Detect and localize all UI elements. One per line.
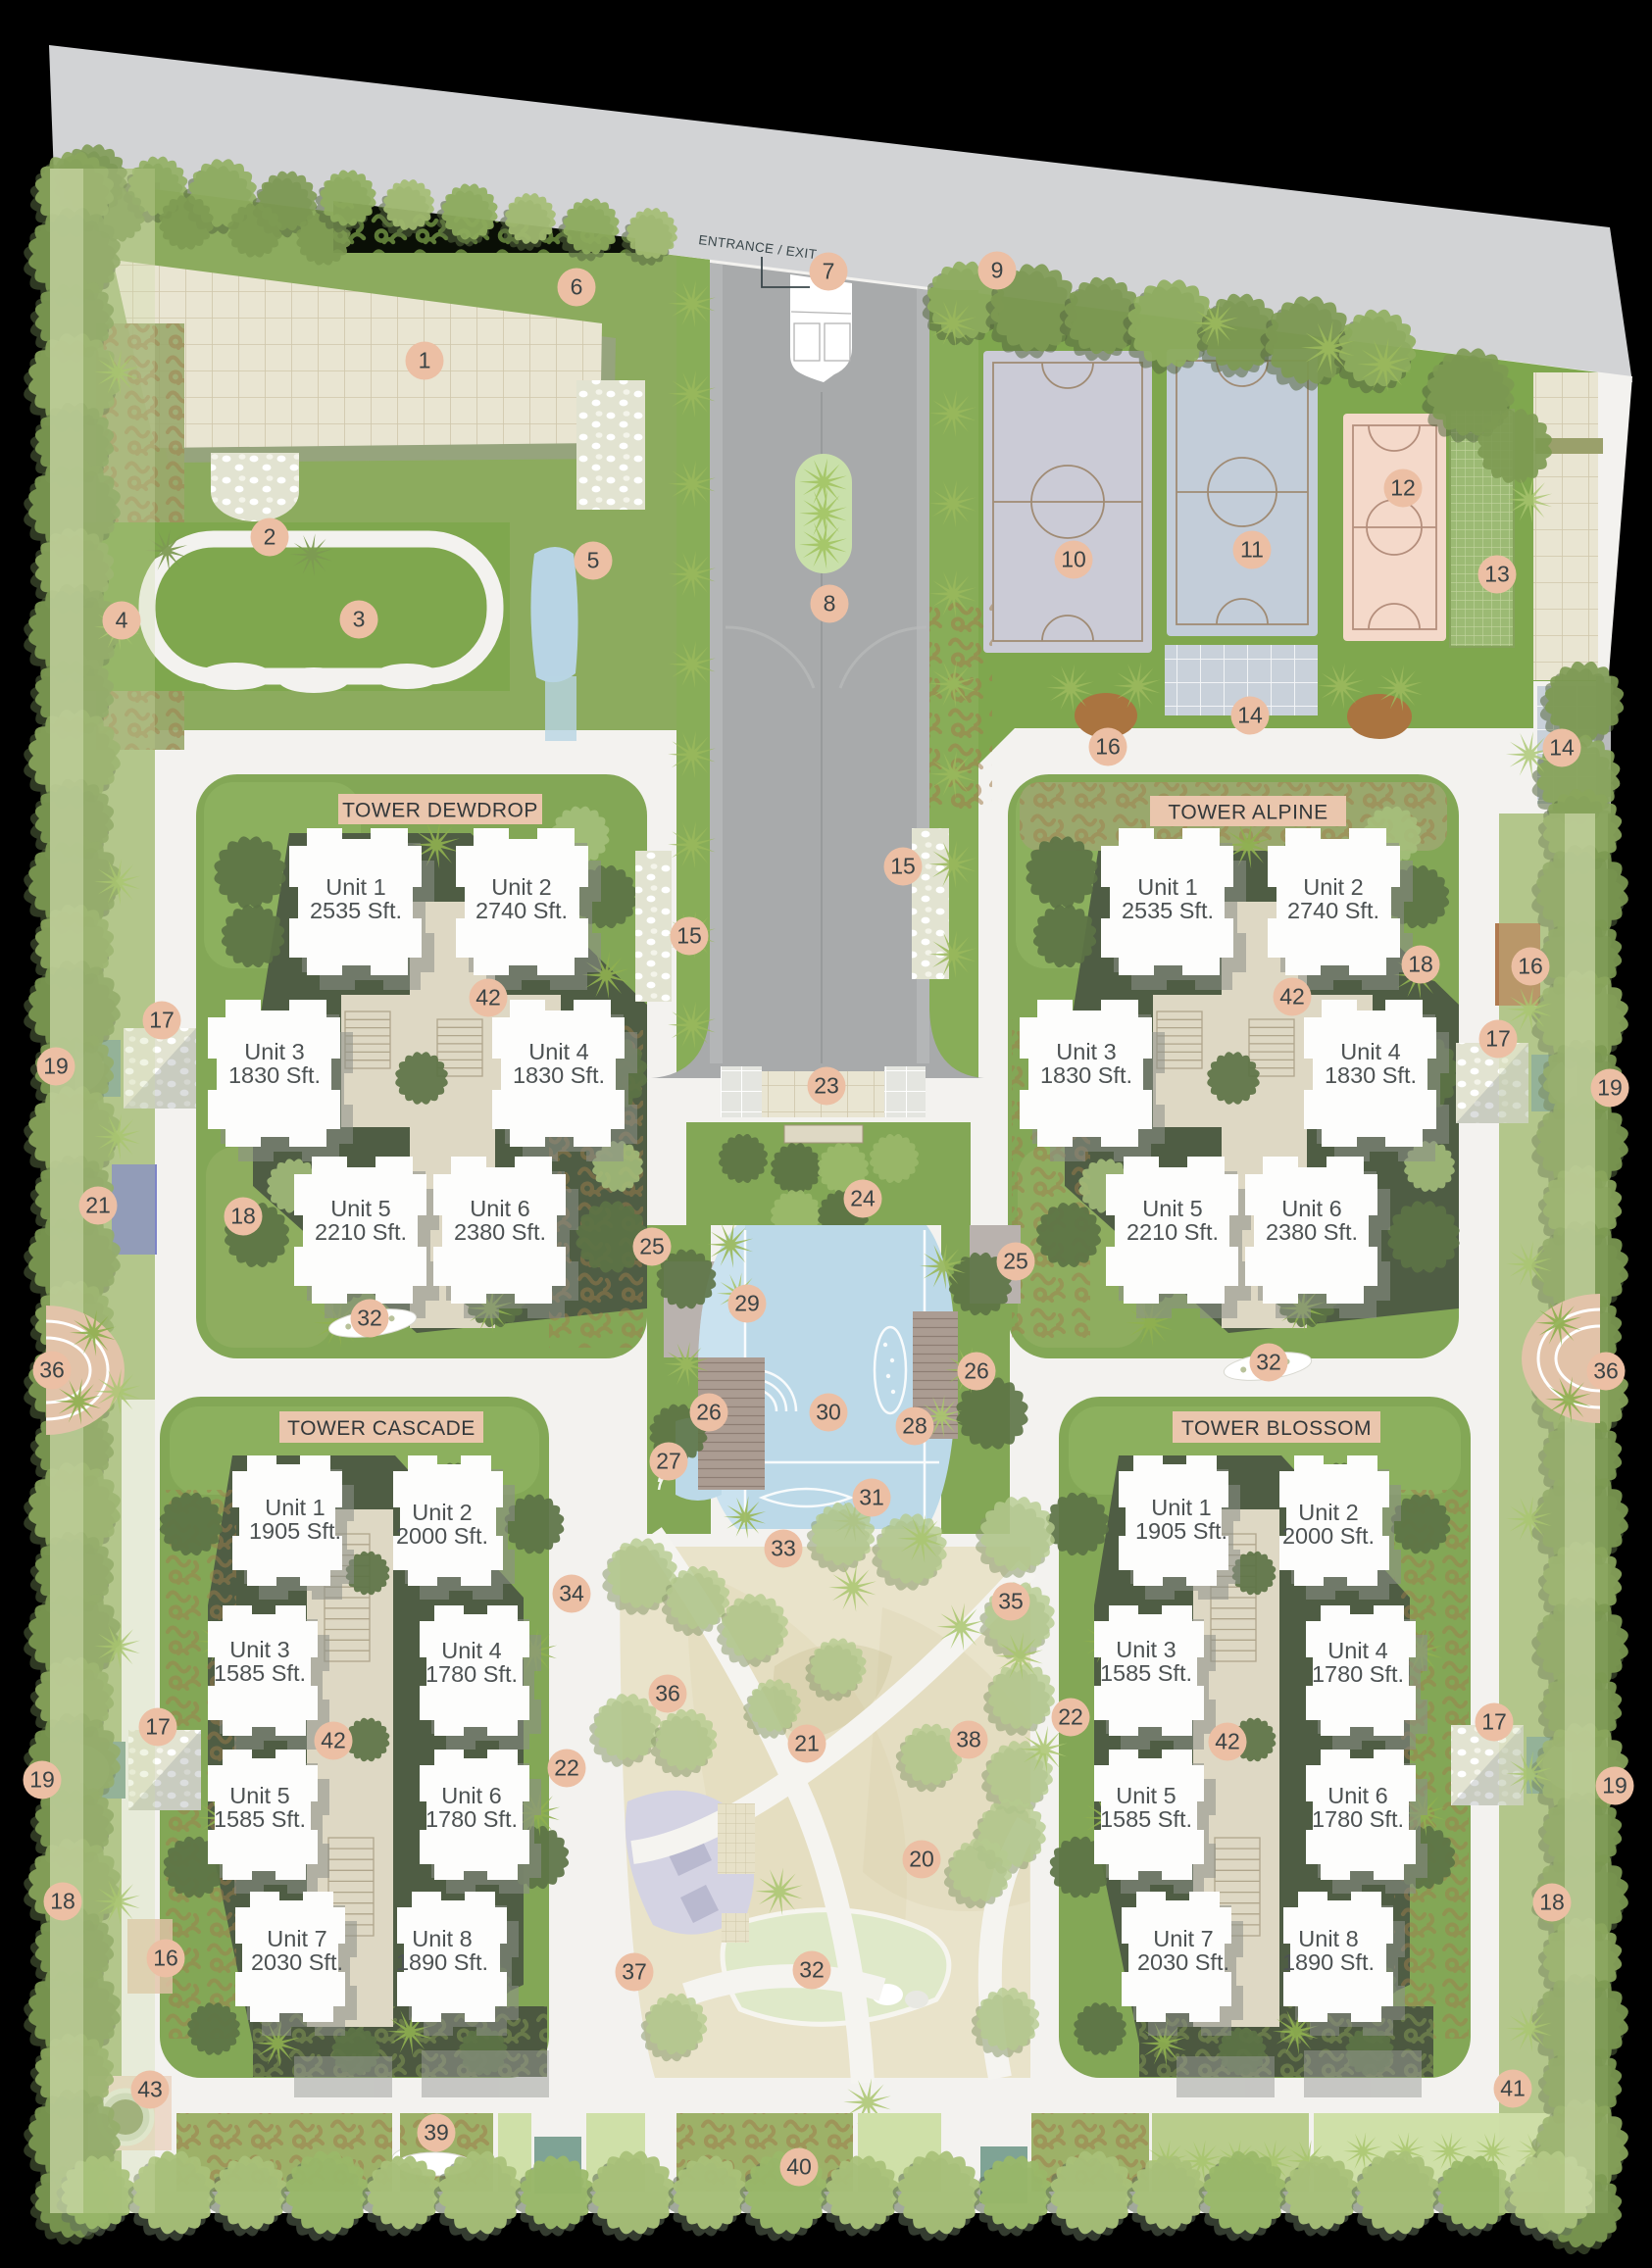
- svg-text:1780 Sft.: 1780 Sft.: [1312, 1806, 1404, 1832]
- svg-text:4: 4: [116, 608, 128, 633]
- svg-text:16: 16: [153, 1946, 178, 1971]
- svg-text:15: 15: [676, 923, 702, 949]
- svg-text:24: 24: [850, 1186, 876, 1211]
- svg-text:31: 31: [859, 1485, 884, 1510]
- svg-text:TOWER BLOSSOM: TOWER BLOSSOM: [1181, 1417, 1372, 1440]
- svg-text:1890 Sft.: 1890 Sft.: [396, 1949, 488, 1975]
- svg-text:2210 Sft.: 2210 Sft.: [315, 1219, 407, 1245]
- svg-text:19: 19: [1597, 1075, 1623, 1101]
- svg-text:Unit 2: Unit 2: [1303, 874, 1363, 900]
- svg-text:28: 28: [902, 1413, 927, 1439]
- svg-text:13: 13: [1484, 562, 1510, 587]
- svg-text:Unit 5: Unit 5: [330, 1196, 390, 1221]
- svg-text:Unit 8: Unit 8: [1298, 1926, 1358, 1951]
- svg-text:17: 17: [149, 1008, 175, 1033]
- svg-text:Unit 4: Unit 4: [1327, 1638, 1387, 1663]
- svg-text:42: 42: [1215, 1729, 1240, 1754]
- svg-text:18: 18: [1539, 1890, 1565, 1915]
- svg-text:34: 34: [559, 1581, 584, 1606]
- svg-text:2030 Sft.: 2030 Sft.: [1137, 1949, 1229, 1975]
- svg-text:Unit 8: Unit 8: [412, 1926, 472, 1951]
- svg-text:2000 Sft.: 2000 Sft.: [1282, 1523, 1375, 1549]
- svg-text:10: 10: [1061, 547, 1086, 572]
- svg-text:37: 37: [622, 1959, 647, 1985]
- svg-text:TOWER DEWDROP: TOWER DEWDROP: [342, 800, 538, 822]
- svg-text:Unit 4: Unit 4: [528, 1039, 588, 1064]
- svg-text:TOWER ALPINE: TOWER ALPINE: [1168, 802, 1327, 824]
- svg-text:1: 1: [419, 348, 431, 373]
- svg-text:36: 36: [655, 1681, 680, 1706]
- svg-text:Unit 5: Unit 5: [229, 1783, 289, 1808]
- svg-text:Unit 1: Unit 1: [265, 1495, 325, 1520]
- svg-text:Unit 3: Unit 3: [1056, 1039, 1116, 1064]
- svg-text:43: 43: [137, 2077, 163, 2102]
- svg-text:21: 21: [794, 1731, 820, 1756]
- svg-text:Unit 6: Unit 6: [441, 1783, 501, 1808]
- svg-text:2210 Sft.: 2210 Sft.: [1126, 1219, 1219, 1245]
- svg-text:Unit 5: Unit 5: [1142, 1196, 1202, 1221]
- svg-text:2030 Sft.: 2030 Sft.: [251, 1949, 343, 1975]
- svg-text:16: 16: [1095, 734, 1121, 760]
- svg-text:Unit 2: Unit 2: [412, 1500, 472, 1525]
- svg-text:Unit 4: Unit 4: [1340, 1039, 1400, 1064]
- svg-text:19: 19: [1602, 1773, 1627, 1799]
- svg-text:35: 35: [998, 1589, 1024, 1614]
- svg-text:Unit 3: Unit 3: [229, 1637, 289, 1662]
- svg-text:Unit 7: Unit 7: [267, 1926, 326, 1951]
- svg-text:2740 Sft.: 2740 Sft.: [476, 898, 568, 923]
- svg-text:1780 Sft.: 1780 Sft.: [1312, 1661, 1404, 1687]
- svg-text:2: 2: [264, 524, 276, 550]
- svg-text:2380 Sft.: 2380 Sft.: [454, 1219, 546, 1245]
- svg-text:1890 Sft.: 1890 Sft.: [1282, 1949, 1375, 1975]
- svg-text:1905 Sft.: 1905 Sft.: [1135, 1518, 1227, 1544]
- svg-text:17: 17: [145, 1714, 171, 1740]
- svg-text:Unit 6: Unit 6: [1327, 1783, 1387, 1808]
- svg-text:1905 Sft.: 1905 Sft.: [249, 1518, 341, 1544]
- svg-text:17: 17: [1485, 1026, 1511, 1052]
- svg-text:Unit 5: Unit 5: [1116, 1783, 1176, 1808]
- svg-text:21: 21: [85, 1193, 111, 1218]
- svg-text:Unit 1: Unit 1: [1137, 874, 1197, 900]
- svg-text:26: 26: [696, 1400, 722, 1425]
- svg-text:1585 Sft.: 1585 Sft.: [1100, 1660, 1192, 1686]
- svg-text:6: 6: [571, 274, 583, 300]
- svg-text:18: 18: [230, 1204, 256, 1229]
- svg-text:26: 26: [964, 1358, 989, 1384]
- svg-text:2740 Sft.: 2740 Sft.: [1287, 898, 1379, 923]
- svg-text:Unit 7: Unit 7: [1153, 1926, 1213, 1951]
- svg-text:Unit 2: Unit 2: [491, 874, 551, 900]
- svg-text:TOWER CASCADE: TOWER CASCADE: [287, 1417, 476, 1440]
- svg-text:12: 12: [1390, 475, 1416, 501]
- svg-text:Unit 6: Unit 6: [1281, 1196, 1341, 1221]
- svg-text:22: 22: [1058, 1704, 1083, 1730]
- svg-text:29: 29: [734, 1291, 760, 1316]
- svg-text:18: 18: [50, 1889, 75, 1914]
- svg-text:Unit 1: Unit 1: [325, 874, 385, 900]
- svg-text:19: 19: [29, 1767, 55, 1793]
- svg-text:36: 36: [39, 1357, 65, 1383]
- svg-text:7: 7: [823, 259, 835, 284]
- svg-text:18: 18: [1408, 952, 1433, 977]
- svg-text:Unit 4: Unit 4: [441, 1638, 501, 1663]
- svg-text:8: 8: [824, 591, 836, 616]
- svg-text:25: 25: [639, 1234, 665, 1259]
- svg-text:36: 36: [1593, 1358, 1619, 1384]
- svg-text:1780 Sft.: 1780 Sft.: [426, 1806, 518, 1832]
- svg-text:9: 9: [991, 258, 1004, 283]
- svg-text:33: 33: [771, 1536, 796, 1561]
- svg-text:Unit 1: Unit 1: [1151, 1495, 1211, 1520]
- svg-text:14: 14: [1237, 703, 1263, 728]
- svg-text:Unit 3: Unit 3: [1116, 1637, 1176, 1662]
- svg-text:17: 17: [1481, 1709, 1507, 1735]
- svg-text:1830 Sft.: 1830 Sft.: [228, 1062, 321, 1088]
- svg-text:20: 20: [909, 1847, 934, 1872]
- svg-text:42: 42: [321, 1728, 346, 1753]
- svg-text:42: 42: [1279, 984, 1305, 1010]
- svg-text:2535 Sft.: 2535 Sft.: [1122, 898, 1214, 923]
- svg-text:14: 14: [1549, 735, 1575, 761]
- svg-text:1585 Sft.: 1585 Sft.: [214, 1806, 306, 1832]
- svg-text:1830 Sft.: 1830 Sft.: [1325, 1062, 1417, 1088]
- svg-text:1585 Sft.: 1585 Sft.: [214, 1660, 306, 1686]
- svg-text:16: 16: [1518, 954, 1543, 979]
- svg-text:1830 Sft.: 1830 Sft.: [513, 1062, 605, 1088]
- svg-text:23: 23: [814, 1073, 839, 1099]
- svg-text:1585 Sft.: 1585 Sft.: [1100, 1806, 1192, 1832]
- svg-text:19: 19: [43, 1054, 69, 1079]
- svg-text:Unit 3: Unit 3: [244, 1039, 304, 1064]
- svg-text:1830 Sft.: 1830 Sft.: [1040, 1062, 1132, 1088]
- svg-text:2000 Sft.: 2000 Sft.: [396, 1523, 488, 1549]
- svg-text:38: 38: [956, 1727, 981, 1752]
- svg-text:Unit 6: Unit 6: [470, 1196, 529, 1221]
- svg-text:27: 27: [656, 1449, 681, 1474]
- svg-text:42: 42: [476, 985, 501, 1011]
- svg-text:41: 41: [1500, 2076, 1526, 2101]
- svg-text:25: 25: [1003, 1249, 1028, 1274]
- svg-text:22: 22: [554, 1755, 579, 1781]
- svg-text:3: 3: [353, 607, 366, 632]
- svg-text:32: 32: [357, 1306, 382, 1331]
- svg-text:39: 39: [424, 2120, 449, 2145]
- svg-text:15: 15: [890, 854, 916, 879]
- svg-text:40: 40: [786, 2154, 812, 2180]
- svg-text:2380 Sft.: 2380 Sft.: [1266, 1219, 1358, 1245]
- svg-text:32: 32: [1256, 1350, 1281, 1375]
- svg-text:5: 5: [587, 548, 600, 573]
- svg-text:Unit 2: Unit 2: [1298, 1500, 1358, 1525]
- svg-text:32: 32: [799, 1957, 825, 1983]
- svg-text:11: 11: [1240, 537, 1264, 563]
- svg-text:1780 Sft.: 1780 Sft.: [426, 1661, 518, 1687]
- svg-text:2535 Sft.: 2535 Sft.: [310, 898, 402, 923]
- svg-text:30: 30: [816, 1400, 841, 1425]
